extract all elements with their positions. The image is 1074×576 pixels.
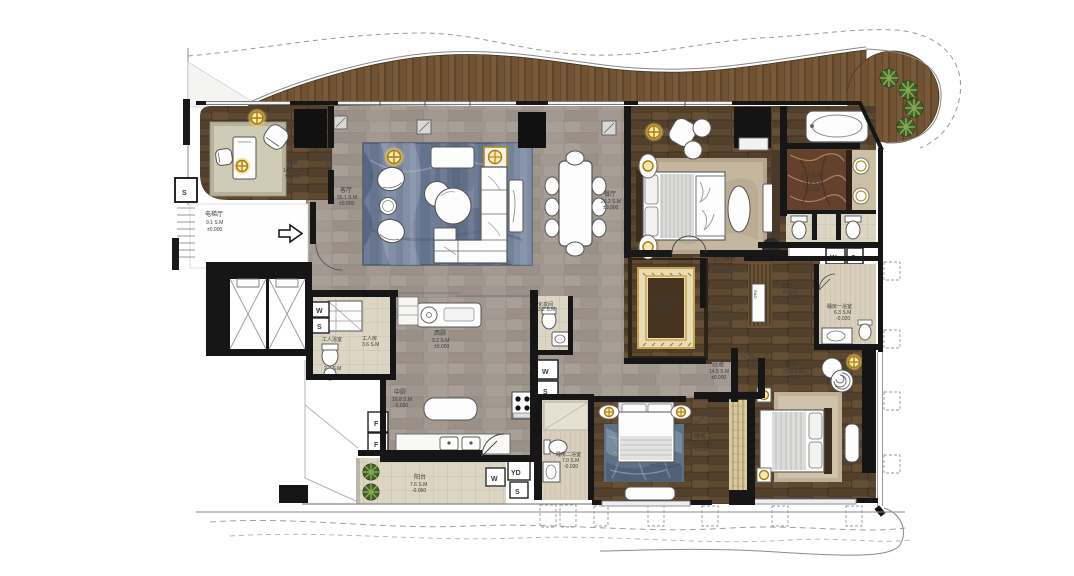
svg-text:中厨: 中厨: [394, 388, 406, 396]
svg-text:5.1 S.M: 5.1 S.M: [783, 296, 800, 302]
svg-text:±0.000: ±0.000: [656, 309, 671, 315]
svg-text:±0.000: ±0.000: [714, 269, 729, 275]
svg-text:±0.000: ±0.000: [603, 205, 618, 211]
svg-text:±0.000: ±0.000: [434, 344, 449, 350]
svg-text:睡房二: 睡房二: [694, 432, 712, 440]
svg-text:S: S: [182, 190, 187, 197]
svg-text:-0.020: -0.020: [394, 403, 408, 409]
svg-text:西厨: 西厨: [434, 330, 446, 337]
svg-text:±0.000: ±0.000: [711, 375, 726, 381]
svg-text:阳台: 阳台: [414, 473, 426, 481]
svg-text:F: F: [374, 421, 379, 428]
svg-text:睡房一: 睡房一: [785, 360, 803, 368]
svg-text:衣帽间: 衣帽间: [782, 289, 797, 296]
svg-text:睡房一: 睡房一: [782, 283, 797, 290]
svg-text:±0.000: ±0.000: [339, 201, 354, 207]
svg-text:-0.060: -0.060: [412, 488, 426, 494]
svg-text:睡房一浴室: 睡房一浴室: [827, 303, 852, 310]
svg-text:睡房二浴室: 睡房二浴室: [556, 451, 581, 458]
svg-text:-0.020: -0.020: [836, 316, 850, 322]
svg-text:±0.000: ±0.000: [785, 375, 800, 381]
svg-text:W: W: [316, 308, 323, 315]
svg-text:客厅: 客厅: [340, 186, 352, 194]
svg-text:±0.000: ±0.000: [207, 227, 222, 233]
svg-text:±0.000: ±0.000: [805, 187, 820, 193]
svg-text:±0.000: ±0.000: [694, 447, 709, 453]
svg-text:S: S: [317, 324, 322, 331]
svg-text:电梯厅: 电梯厅: [205, 210, 223, 218]
svg-text:工人浴室: 工人浴室: [322, 336, 342, 343]
svg-text:F: F: [374, 442, 379, 449]
svg-text:W: W: [491, 476, 498, 483]
svg-text:9.1 S.M: 9.1 S.M: [206, 220, 223, 226]
svg-text:3.2 S.M: 3.2 S.M: [538, 307, 555, 313]
svg-text:±0.000: ±0.000: [285, 174, 300, 180]
svg-text:主人浴室: 主人浴室: [800, 172, 823, 180]
svg-text:W: W: [542, 369, 549, 376]
svg-text:3.6 S.M: 3.6 S.M: [362, 342, 379, 348]
svg-text:YD: YD: [511, 470, 521, 477]
svg-text:工人房: 工人房: [362, 335, 377, 342]
svg-text:主人衣帽间: 主人衣帽间: [650, 294, 678, 302]
svg-text:S: S: [515, 489, 520, 496]
svg-text:R&O: R&O: [753, 290, 758, 299]
svg-text:书房: 书房: [286, 159, 298, 167]
svg-text:-0.020: -0.020: [564, 464, 578, 470]
svg-text:餐厅: 餐厅: [604, 190, 616, 198]
